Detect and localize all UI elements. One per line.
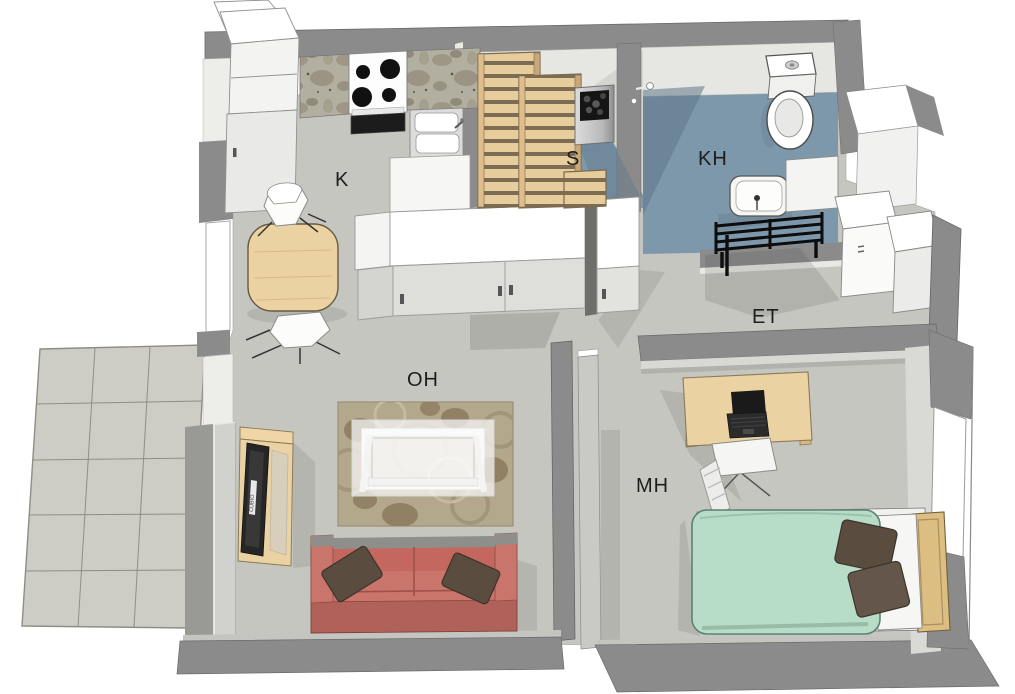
tv-brand-label: CUBIO — [249, 494, 256, 512]
label-kitchen: K — [335, 169, 349, 191]
label-living-room: OH — [407, 369, 439, 391]
desk — [683, 372, 812, 447]
oven — [351, 107, 405, 134]
patio-tiles — [22, 345, 205, 628]
divider-wall-east — [578, 355, 601, 649]
label-bedroom: MH — [636, 475, 669, 497]
bottom-wall-living — [177, 637, 564, 674]
sauna-stool — [564, 170, 606, 208]
label-bathroom: KH — [698, 148, 728, 170]
hall-cabinet-row — [355, 197, 639, 320]
window-opening — [206, 221, 230, 332]
label-entry: ET — [752, 306, 780, 328]
bed — [692, 508, 950, 634]
coffee-table — [352, 420, 494, 496]
divider-wall-west — [551, 341, 575, 641]
marble-counter — [300, 54, 349, 118]
marble-counter-right — [407, 48, 480, 110]
laptop — [727, 390, 769, 438]
wardrobe-a-front — [841, 222, 897, 297]
dining-table — [248, 224, 338, 311]
label-sauna: S — [566, 148, 580, 170]
sink-base-cabinet — [390, 155, 470, 213]
floor-plan-stage: CUBIO — [0, 0, 1015, 694]
bathroom-cabinet — [786, 156, 838, 212]
floor-plan-svg: CUBIO — [0, 0, 1015, 694]
stove — [349, 51, 407, 114]
washbasin — [730, 176, 788, 216]
sofa — [311, 533, 517, 633]
sink — [410, 108, 464, 158]
entry-back-wall — [929, 215, 961, 341]
tv-stand: CUBIO — [238, 427, 293, 566]
sauna-heater — [575, 85, 614, 145]
